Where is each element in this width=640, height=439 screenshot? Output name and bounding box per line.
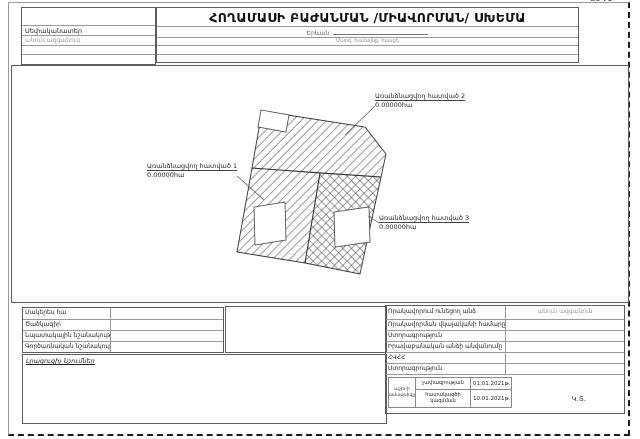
certificate-number-label: Որակավորման վկայականի համարը xyxy=(386,320,506,330)
table-row: Ծածկագիր xyxy=(23,319,223,330)
table-row: Որակավորման վկայականի համարը xyxy=(386,319,624,330)
building-outline-1 xyxy=(254,202,286,245)
qualified-person-label: Որակավորում ունեցող անձ xyxy=(386,306,506,319)
legal-entity-label: Իրավաբանական անձի անվանումը xyxy=(386,342,506,352)
signature-label: Ստորագրություն xyxy=(386,331,506,341)
owner-label: Սեփականատեր xyxy=(22,25,155,35)
section-3-area: 0.00000հա xyxy=(379,223,416,231)
legal-entity-value xyxy=(506,342,624,352)
dates-rows: չափագրության 01.01.2021թ. հատակագծի կազմ… xyxy=(416,378,511,407)
header-empty-row xyxy=(157,45,578,54)
table-row: ՀՎՀՀ xyxy=(386,352,624,363)
owner-empty-row xyxy=(22,54,155,64)
table-row: Գործառնական նշանակություն xyxy=(23,341,223,352)
table-row: Նպատակային նշանակություն xyxy=(23,330,223,341)
header-block: ՀՈՂԱՄԱՍԻ ԲԱԺԱՆՄԱՆ /ՄԻԱՎՈՐՄԱՆ/ ՍԽԵՄԱ Երևա… xyxy=(156,7,579,63)
signature2-value xyxy=(506,364,624,374)
table-row: հատակագծի կազմման 10.01.2021թ. xyxy=(416,389,511,407)
section-2-title: Առանձնացվող հատված 2 xyxy=(375,92,465,101)
owner-name-placeholder: անուն ազգանուն xyxy=(22,35,155,45)
section-1-area: 0.00000հա xyxy=(147,171,184,179)
survey-date-label: չափագրության xyxy=(416,378,471,389)
section-1-title: Առանձնացվող հատված 1 xyxy=(147,162,237,171)
dates-table: աշխ-ի ամսաթիվը չափագրության 01.01.2021թ.… xyxy=(388,377,512,408)
tax-id-label: ՀՎՀՀ xyxy=(386,353,506,363)
owner-block: Սեփականատեր անուն ազգանուն xyxy=(21,7,156,65)
parcel-attributes-table: Մակերես հա Ծածկագիր Նպատակային նշանակութ… xyxy=(22,307,224,353)
surveyor-table: Որակավորում ունեցող անձ անուն ազգանուն Ո… xyxy=(385,305,625,414)
table-row: Որակավորում ունեցող անձ անուն ազգանուն xyxy=(386,306,624,319)
location-value: Երևան xyxy=(307,30,330,37)
building-outline-3 xyxy=(334,207,370,247)
table-row: Մակերես հա xyxy=(23,308,223,319)
tax-id-value xyxy=(506,353,624,363)
table-row: Ստորագրություն xyxy=(386,363,624,374)
certificate-number-value xyxy=(506,320,624,330)
qualified-person-placeholder: անուն ազգանուն xyxy=(506,306,624,319)
plan-date-label: հատակագծի կազմման xyxy=(416,390,471,407)
section-3-label: Առանձնացվող հատված 3 0.00000հա xyxy=(379,214,469,231)
table-row: Ստորագրություն xyxy=(386,330,624,341)
seal-place-mark: Կ.Տ. xyxy=(571,395,586,403)
section-2-area: 0.00000հա xyxy=(375,101,412,109)
parcel-drawing-area: Առանձնացվող հատված 1 0.00000հա Առանձնացվ… xyxy=(11,65,629,303)
section-1-label: Առանձնացվող հատված 1 0.00000հա xyxy=(147,162,237,179)
attr-code-value xyxy=(111,320,223,330)
attr-area-label: Մակերես հա xyxy=(23,308,111,319)
dates-and-seal-region: աշխ-ի ամսաթիվը չափագրության 01.01.2021թ.… xyxy=(386,374,624,413)
additional-notes-label: Լրացուցիչ նշումներ xyxy=(26,357,95,365)
signature2-label: Ստորագրություն xyxy=(386,364,506,374)
empty-box xyxy=(225,306,387,353)
table-row: Իրավաբանական անձի անվանումը xyxy=(386,341,624,352)
dates-group-label: աշխ-ի ամսաթիվը xyxy=(389,378,416,407)
section-3-title: Առանձնացվող հատված 3 xyxy=(379,214,469,223)
owner-empty-row xyxy=(22,45,155,54)
signature-value xyxy=(506,331,624,341)
plan-date-value: 10.01.2021թ. xyxy=(471,390,511,407)
additional-notes-box: Լրացուցիչ նշումներ xyxy=(22,354,387,424)
attr-area-value xyxy=(111,308,223,319)
location-row: Երևան xyxy=(157,26,578,37)
owner-empty-row xyxy=(22,8,155,25)
attr-purpose-label: Նպատակային նշանակություն xyxy=(23,331,111,341)
section-2-label: Առանձնացվող հատված 2 0.00000հա xyxy=(375,92,465,109)
attr-function-value xyxy=(111,342,223,352)
attr-code-label: Ծածկագիր xyxy=(23,320,111,330)
attr-purpose-value xyxy=(111,331,223,341)
page-title: ՀՈՂԱՄԱՍԻ ԲԱԺԱՆՄԱՆ /ՄԻԱՎՈՐՄԱՆ/ ՍԽԵՄԱ xyxy=(157,8,578,26)
table-row: չափագրության 01.01.2021թ. xyxy=(416,378,511,389)
header-empty-row xyxy=(157,54,578,62)
location-blank-line xyxy=(333,27,428,35)
location-hint: Մարզ, համայնք, հասցե xyxy=(157,37,578,45)
attr-function-label: Գործառնական նշանակություն xyxy=(23,342,111,352)
form-sheet-border: Սեփականատեր անուն ազգանուն ՀՈՂԱՄԱՍԻ ԲԱԺԱ… xyxy=(8,2,630,436)
document-page: ՁԵՎ 2 Սեփականատեր անուն ազգանուն ՀՈՂԱՄԱՍ… xyxy=(0,0,640,439)
parcel-scheme-svg xyxy=(12,66,628,302)
survey-date-value: 01.01.2021թ. xyxy=(471,378,511,389)
